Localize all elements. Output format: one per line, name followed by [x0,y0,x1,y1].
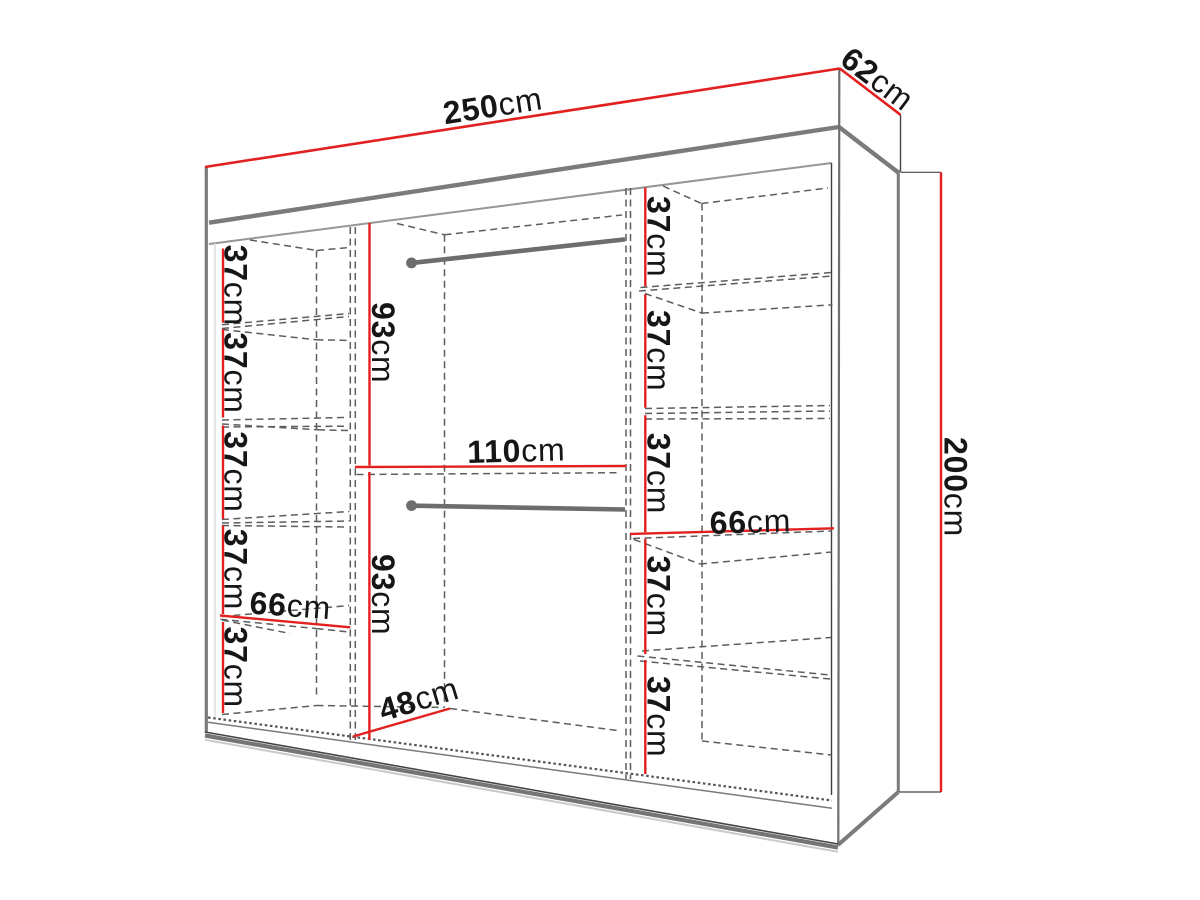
svg-text:37cm: 37cm [218,627,254,708]
svg-text:37cm: 37cm [218,332,254,413]
svg-text:37cm: 37cm [218,431,254,512]
svg-text:37cm: 37cm [218,529,254,610]
svg-text:66cm: 66cm [249,585,333,627]
svg-text:37cm: 37cm [640,433,676,514]
svg-text:110cm: 110cm [467,431,566,470]
svg-text:37cm: 37cm [640,556,676,637]
svg-text:37cm: 37cm [640,310,676,391]
svg-text:37cm: 37cm [640,676,676,757]
svg-text:37cm: 37cm [640,196,676,277]
svg-text:66cm: 66cm [709,502,792,541]
svg-text:200cm: 200cm [938,437,974,537]
svg-text:93cm: 93cm [365,554,401,635]
svg-text:93cm: 93cm [365,302,401,383]
svg-text:37cm: 37cm [218,245,254,326]
